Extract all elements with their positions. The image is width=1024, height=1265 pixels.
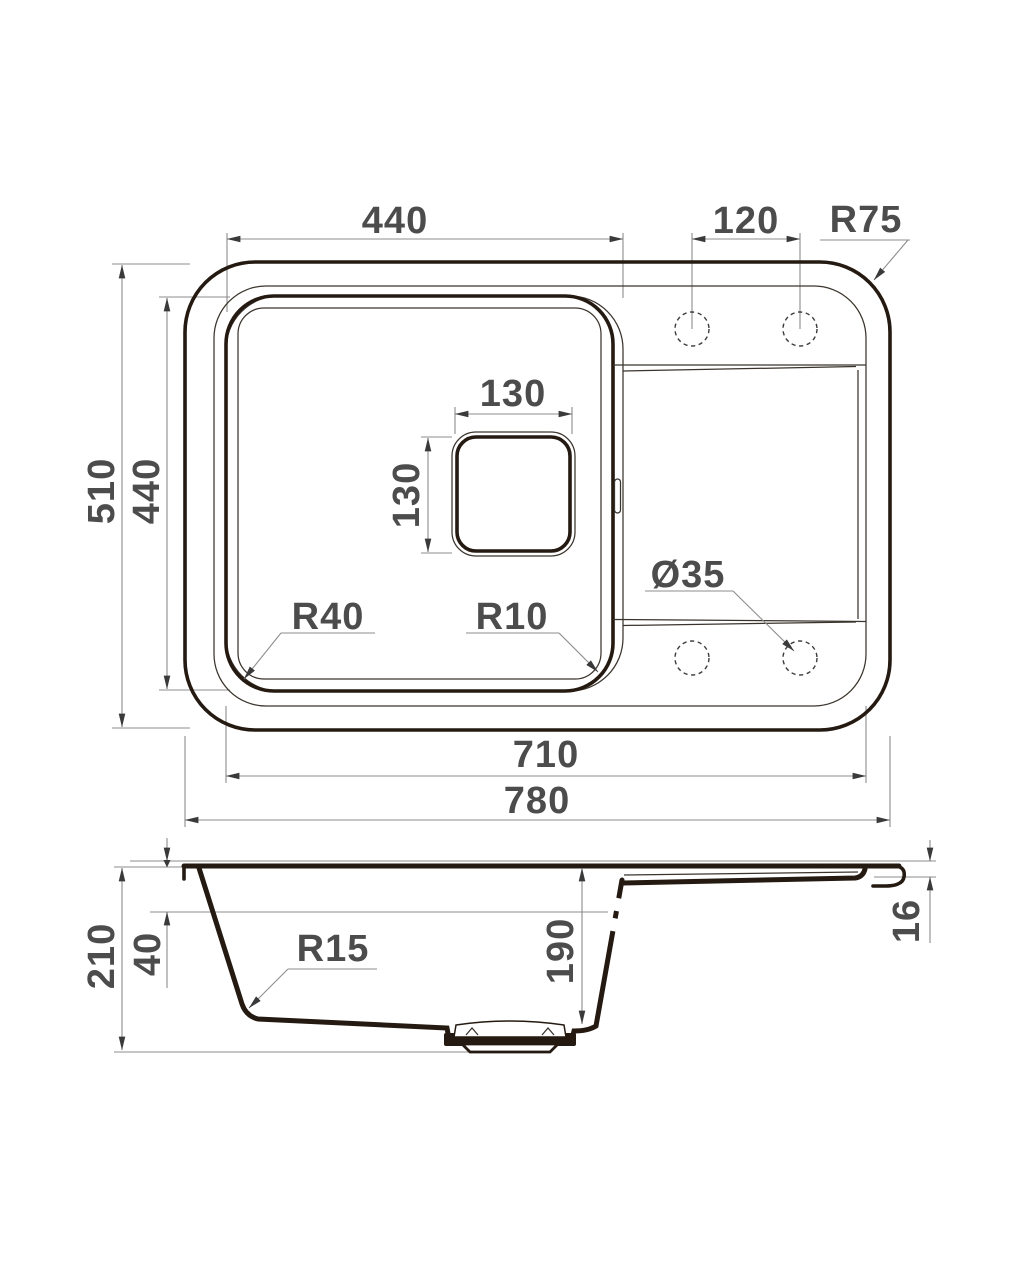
drain-nut <box>462 1044 558 1052</box>
technical-drawing-page: 440 120 R75 510 440 130 130 R40 R10 Ø35 … <box>0 0 1024 1265</box>
dim-inner-length: 710 <box>513 734 579 776</box>
overflow-slot <box>615 479 621 513</box>
leader-r40 <box>244 633 375 679</box>
dim-bowl-inner-depth: 190 <box>540 918 582 984</box>
dim-drain-width: 130 <box>480 373 546 415</box>
leader-r75 <box>820 240 910 280</box>
dim-edge-thickness: 16 <box>886 899 928 943</box>
extension-lines-top-view <box>112 233 890 827</box>
leader-r15 <box>249 969 377 1008</box>
dim-drain-height: 130 <box>386 462 428 528</box>
drainboard-surface <box>624 872 858 875</box>
sink-outer-edge <box>185 262 890 730</box>
faucet-hole-bottom-left <box>675 641 709 675</box>
side-view: 210 40 190 R15 16 <box>81 838 936 1052</box>
drainboard-underside <box>623 869 865 883</box>
label-hole-diameter: Ø35 <box>651 554 726 596</box>
label-outer-corner-radius: R75 <box>830 199 903 241</box>
label-bowl-corner-radius: R40 <box>292 596 365 638</box>
dim-overall-length: 780 <box>504 780 570 822</box>
sink-rim-inner-edge <box>214 286 866 706</box>
rim-right-hook <box>873 866 904 886</box>
drain-assembly <box>444 1021 576 1052</box>
dim-bowl-depth: 440 <box>126 458 168 524</box>
dim-bowl-width: 440 <box>362 200 428 242</box>
dim-overall-height: 210 <box>81 923 123 989</box>
leader-r10 <box>466 633 598 672</box>
label-bottom-corner-radius: R15 <box>297 928 370 970</box>
dimension-lines-top-view <box>122 239 910 820</box>
dim-overall-depth: 510 <box>81 458 123 524</box>
label-bowl-inner-radius: R10 <box>476 596 549 638</box>
faucet-hole-bottom-right <box>783 641 817 675</box>
drain-square-outer <box>452 432 575 556</box>
dim-rim-depth: 40 <box>127 932 169 976</box>
drain-square <box>457 437 570 551</box>
dim-hole-spacing: 120 <box>713 200 779 242</box>
sink-dimension-drawing: 440 120 R75 510 440 130 130 R40 R10 Ø35 … <box>0 0 1024 1265</box>
top-view: 440 120 R75 510 440 130 130 R40 R10 Ø35 … <box>81 199 910 827</box>
dimension-lines-side-view <box>122 838 930 1050</box>
